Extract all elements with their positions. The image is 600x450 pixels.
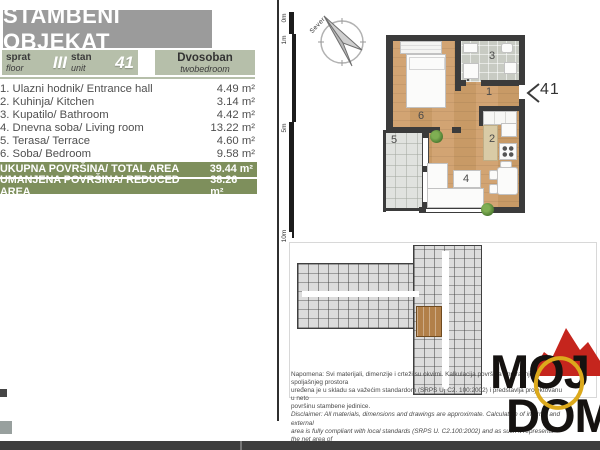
dining-chair bbox=[489, 170, 498, 180]
dining-table bbox=[497, 167, 518, 195]
room-area: 9.58 m² bbox=[217, 148, 255, 161]
label-terrace: 5 bbox=[391, 135, 397, 146]
room-row: 3. Kupatilo/ Bathroom 4.42 m² bbox=[0, 109, 255, 122]
floor-label-sr: sprat bbox=[6, 53, 30, 63]
floor-label-en: floor bbox=[6, 63, 30, 73]
floor-cell: sprat floor III bbox=[2, 50, 71, 75]
room-name: 3. Kupatilo/ Bathroom bbox=[0, 109, 109, 122]
apartment-floor-plan: 6 3 1 2 4 5 bbox=[382, 35, 525, 217]
wall-bath-a bbox=[461, 80, 466, 86]
window-mullion bbox=[422, 132, 429, 138]
room-row: 1. Ulazni hodnik/ Entrance hall 4.49 m² bbox=[0, 83, 255, 96]
unit-label-en: unit bbox=[71, 63, 92, 73]
page-title: STAMBENI OBJEKAT bbox=[3, 10, 212, 48]
unit-value: 41 bbox=[115, 53, 134, 73]
apartment-type-cell: Dvosoban twobedroom bbox=[155, 50, 255, 75]
room-name: 5. Terasa/ Terrace bbox=[0, 135, 90, 148]
room-area: 4.49 m² bbox=[217, 83, 255, 96]
plant bbox=[430, 130, 443, 143]
scale-segment bbox=[289, 12, 293, 34]
type-label-en: twobedroom bbox=[180, 64, 230, 74]
header-rule bbox=[0, 77, 255, 79]
scale-mark-0m: 0m bbox=[281, 8, 289, 28]
room-row: 2. Kuhinja/ Kitchen 3.14 m² bbox=[0, 96, 255, 109]
unit-label-sr: stan bbox=[71, 53, 92, 63]
kitchen-sink bbox=[501, 123, 517, 137]
bath-shelf bbox=[504, 62, 517, 74]
room-area: 4.42 m² bbox=[217, 109, 255, 122]
entrance-unit-number: 41 bbox=[540, 81, 560, 99]
terrace-wall-left bbox=[383, 130, 386, 212]
flyer-page: STAMBENI OBJEKAT sprat floor III stan un… bbox=[0, 0, 600, 450]
compass-icon bbox=[310, 6, 370, 70]
terrace-wall-bottom bbox=[383, 208, 421, 211]
window-bottom bbox=[426, 209, 484, 213]
wall-stub bbox=[452, 127, 461, 133]
room-row: 5. Terasa/ Terrace 4.60 m² bbox=[0, 135, 255, 148]
room-name: 1. Ulazni hodnik/ Entrance hall bbox=[0, 83, 153, 96]
wall-left bbox=[386, 35, 393, 133]
wall-right-upper bbox=[519, 35, 525, 85]
dining-chair bbox=[489, 184, 498, 194]
corridor-horizontal bbox=[302, 291, 419, 297]
scale-bar: 0m 1m 5m 10m bbox=[282, 8, 298, 240]
toilet bbox=[501, 43, 513, 53]
room-area: 13.22 m² bbox=[210, 122, 255, 135]
entrance-arrow-icon bbox=[526, 82, 540, 104]
panel-divider bbox=[277, 0, 279, 421]
corridor-vertical bbox=[442, 251, 449, 389]
room-area: 4.60 m² bbox=[217, 135, 255, 148]
label-entrance-hall: 1 bbox=[486, 87, 492, 98]
scale-segment bbox=[289, 122, 293, 232]
label-living-room: 4 bbox=[463, 174, 469, 185]
plant bbox=[481, 203, 494, 216]
scale-mark-5m: 5m bbox=[281, 118, 289, 138]
room-name: 4. Dnevna soba/ Living room bbox=[0, 122, 144, 135]
floor-labels: sprat floor bbox=[6, 53, 30, 73]
reduced-area-label: UMANJENA POVRŠINA/ REDUCED AREA bbox=[0, 174, 210, 198]
room-area: 3.14 m² bbox=[217, 96, 255, 109]
room-name: 6. Soba/ Bedroom bbox=[0, 148, 91, 161]
sofa-horizontal bbox=[427, 188, 484, 208]
bath-sink bbox=[463, 43, 478, 53]
dining-chair bbox=[500, 161, 512, 168]
room-list: 1. Ulazni hodnik/ Entrance hall 4.49 m² … bbox=[0, 83, 255, 161]
highlighted-unit bbox=[416, 306, 442, 337]
reduced-area-bar: UMANJENA POVRŠINA/ REDUCED AREA 38.26 m² bbox=[0, 179, 257, 194]
bed-pillow bbox=[409, 57, 445, 70]
floor-value: III bbox=[53, 53, 67, 73]
scale-mark-10m: 10m bbox=[281, 226, 289, 246]
edge-artifact bbox=[0, 421, 12, 434]
compass-rose: Sever bbox=[310, 6, 370, 70]
scale-segment bbox=[292, 34, 296, 122]
bottom-bar-tick bbox=[240, 441, 242, 450]
label-bedroom: 6 bbox=[418, 111, 424, 122]
room-row: 6. Soba/ Bedroom 9.58 m² bbox=[0, 148, 255, 161]
page-title-text: STAMBENI OBJEKAT bbox=[3, 3, 212, 55]
unit-cell: stan unit 41 bbox=[67, 50, 138, 75]
bed bbox=[406, 54, 446, 108]
washing-machine bbox=[463, 63, 479, 79]
room-name: 2. Kuhinja/ Kitchen bbox=[0, 96, 94, 109]
wall-right-lower bbox=[519, 99, 525, 213]
terrace-floor bbox=[384, 132, 422, 210]
label-bathroom: 3 bbox=[489, 51, 495, 62]
stove bbox=[499, 143, 517, 160]
label-kitchen: 2 bbox=[489, 134, 495, 145]
type-label-sr: Dvosoban bbox=[177, 52, 233, 64]
scale-mark-1m: 1m bbox=[281, 30, 289, 50]
reduced-area-value: 38.26 m² bbox=[210, 174, 253, 198]
unit-labels: stan unit bbox=[71, 53, 92, 73]
wardrobe bbox=[400, 41, 442, 54]
edge-artifact bbox=[0, 389, 7, 397]
moj-dom-logo: MOJ DOM bbox=[486, 324, 600, 448]
room-row: 4. Dnevna soba/ Living room 13.22 m² bbox=[0, 122, 255, 135]
